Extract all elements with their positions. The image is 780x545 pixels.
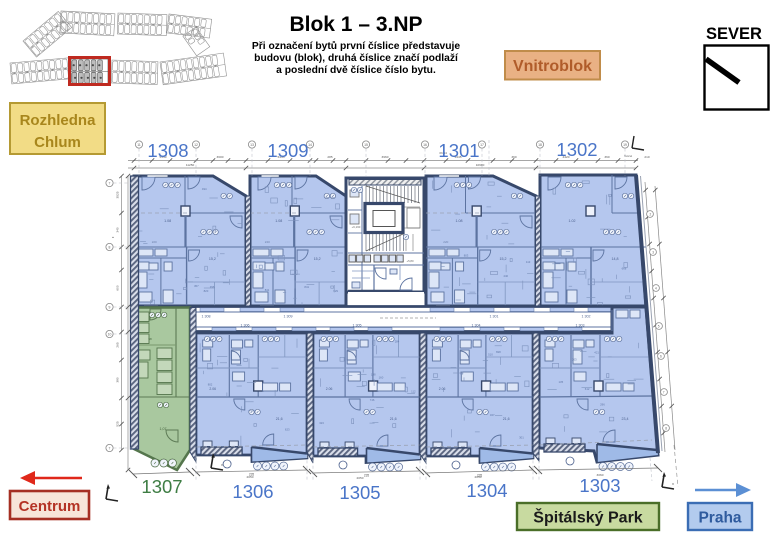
svg-text:1305: 1305 [339,482,380,503]
svg-text:10: 10 [108,333,112,337]
svg-text:510: 510 [488,352,493,356]
svg-text:8: 8 [665,427,667,431]
svg-text:4: 4 [655,287,657,291]
svg-text:802: 802 [208,383,213,387]
svg-text:12: 12 [194,143,198,147]
svg-text:220: 220 [443,240,448,244]
svg-text:15,2: 15,2 [314,257,321,261]
svg-text:7: 7 [109,447,111,451]
svg-text:340: 340 [116,227,120,232]
svg-text:1306: 1306 [232,481,273,502]
svg-text:396: 396 [210,285,215,289]
svg-text:1301: 1301 [438,140,479,161]
svg-text:1309: 1309 [267,140,308,161]
svg-text:2: 2 [650,213,652,217]
svg-text:301: 301 [519,436,524,440]
svg-text:Blok 1 – 3.NP: Blok 1 – 3.NP [289,13,422,36]
svg-text:327: 327 [490,413,495,417]
svg-text:1307: 1307 [141,476,182,497]
svg-text:1 306: 1 306 [241,323,250,327]
svg-text:841: 841 [265,288,270,292]
svg-text:1 302: 1 302 [582,315,591,319]
svg-text:2050: 2050 [357,476,364,480]
svg-text:421: 421 [594,351,599,355]
svg-text:Centrum: Centrum [19,498,81,515]
svg-text:1 305: 1 305 [353,323,362,327]
svg-text:10980: 10980 [476,163,485,167]
svg-text:160: 160 [379,375,384,379]
svg-text:15: 15 [364,143,368,147]
svg-text:746: 746 [370,398,375,402]
svg-text:18: 18 [538,143,542,147]
svg-text:1308: 1308 [147,140,188,161]
svg-text:11250: 11250 [186,163,195,167]
svg-text:21,6: 21,6 [390,417,397,421]
svg-text:9: 9 [109,306,111,310]
svg-text:Chlum: Chlum [34,134,81,151]
svg-text:1 301: 1 301 [490,315,499,319]
svg-text:623: 623 [285,427,290,431]
svg-text:x: x [672,482,674,486]
svg-text:budovu (blok), druhá číslice z: budovu (blok), druhá číslice značí podla… [254,53,459,64]
svg-text:188: 188 [371,373,376,377]
svg-text:7: 7 [663,391,665,395]
svg-text:Rozhledna: Rozhledna [20,112,96,129]
svg-text:2050: 2050 [247,475,254,479]
svg-text:2050: 2050 [475,475,482,479]
svg-text:600: 600 [116,285,120,290]
svg-text:692: 692 [209,338,214,342]
svg-text:+5,80: +5,80 [406,259,414,263]
svg-text:494: 494 [202,187,207,191]
svg-text:210: 210 [644,155,649,159]
svg-text:14: 14 [308,143,312,147]
svg-text:1 309: 1 309 [284,315,293,319]
svg-text:525: 525 [116,421,120,426]
svg-text:1.08: 1.08 [456,219,463,223]
svg-text:1304: 1304 [466,480,507,501]
svg-text:2.06: 2.06 [439,387,446,391]
svg-text:2.06: 2.06 [326,387,333,391]
svg-text:13: 13 [250,143,254,147]
svg-text:x: x [221,463,223,467]
svg-text:296: 296 [600,403,605,407]
svg-text:Vnitroblok: Vnitroblok [513,58,592,75]
svg-text:1.08: 1.08 [275,219,282,223]
svg-text:1303: 1303 [579,475,620,496]
svg-text:14,8: 14,8 [612,257,619,261]
svg-text:285: 285 [327,155,332,159]
svg-text:15,2: 15,2 [500,257,507,261]
svg-text:1,07: 1,07 [160,427,167,431]
svg-text:323: 323 [319,421,324,425]
svg-text:380: 380 [116,377,120,382]
svg-text:8: 8 [109,246,111,250]
svg-text:841: 841 [304,285,309,289]
svg-text:Při označení bytů první číslic: Při označení bytů první číslice představ… [252,40,461,52]
svg-text:1.08: 1.08 [164,219,171,223]
svg-text:203: 203 [572,358,577,362]
svg-text:19: 19 [623,143,627,147]
svg-text:11: 11 [137,143,141,147]
svg-text:1 303: 1 303 [576,323,585,327]
svg-text:1 304: 1 304 [472,323,481,327]
svg-text:1 308: 1 308 [202,315,211,319]
svg-text:803: 803 [464,254,469,258]
svg-text:135: 135 [559,380,564,384]
svg-text:58: 58 [148,337,152,341]
svg-text:220: 220 [152,240,157,244]
svg-text:3: 3 [652,251,654,255]
svg-text:698: 698 [496,350,501,354]
svg-text:1.02: 1.02 [569,219,576,223]
svg-text:3600: 3600 [217,155,224,159]
svg-text:360: 360 [511,155,516,159]
svg-text:15,2: 15,2 [209,257,216,261]
svg-text:440: 440 [503,274,508,278]
svg-text:7: 7 [109,182,111,186]
svg-text:3525: 3525 [116,191,120,198]
svg-text:265: 265 [116,342,120,347]
svg-text:112: 112 [411,390,416,394]
svg-text:16: 16 [423,143,427,147]
svg-text:21,6: 21,6 [503,417,510,421]
svg-text:284: 284 [395,340,400,344]
svg-text:2.06: 2.06 [209,387,216,391]
svg-text:113: 113 [526,260,531,264]
svg-text:a poslední dvě číslice číslo b: a poslední dvě číslice číslo bytu. [276,65,436,76]
svg-text:23,4: 23,4 [622,417,629,421]
svg-text:+6,160: +6,160 [352,225,361,229]
svg-text:Špitálský Park: Špitálský Park [533,508,643,527]
svg-text:1302: 1302 [556,139,597,160]
svg-text:SEVER: SEVER [706,25,762,43]
svg-text:360: 360 [604,155,609,159]
svg-text:457: 457 [194,284,199,288]
svg-text:17: 17 [480,143,484,147]
svg-text:235: 235 [364,474,370,478]
svg-text:Praha: Praha [698,510,741,527]
svg-text:21,6: 21,6 [276,417,283,421]
svg-text:3960: 3960 [382,155,389,159]
svg-text:▲: ▲ [112,236,114,239]
svg-text:220: 220 [265,240,270,244]
svg-text:820: 820 [204,289,209,293]
svg-text:6: 6 [660,355,662,359]
svg-text:5: 5 [658,325,660,329]
